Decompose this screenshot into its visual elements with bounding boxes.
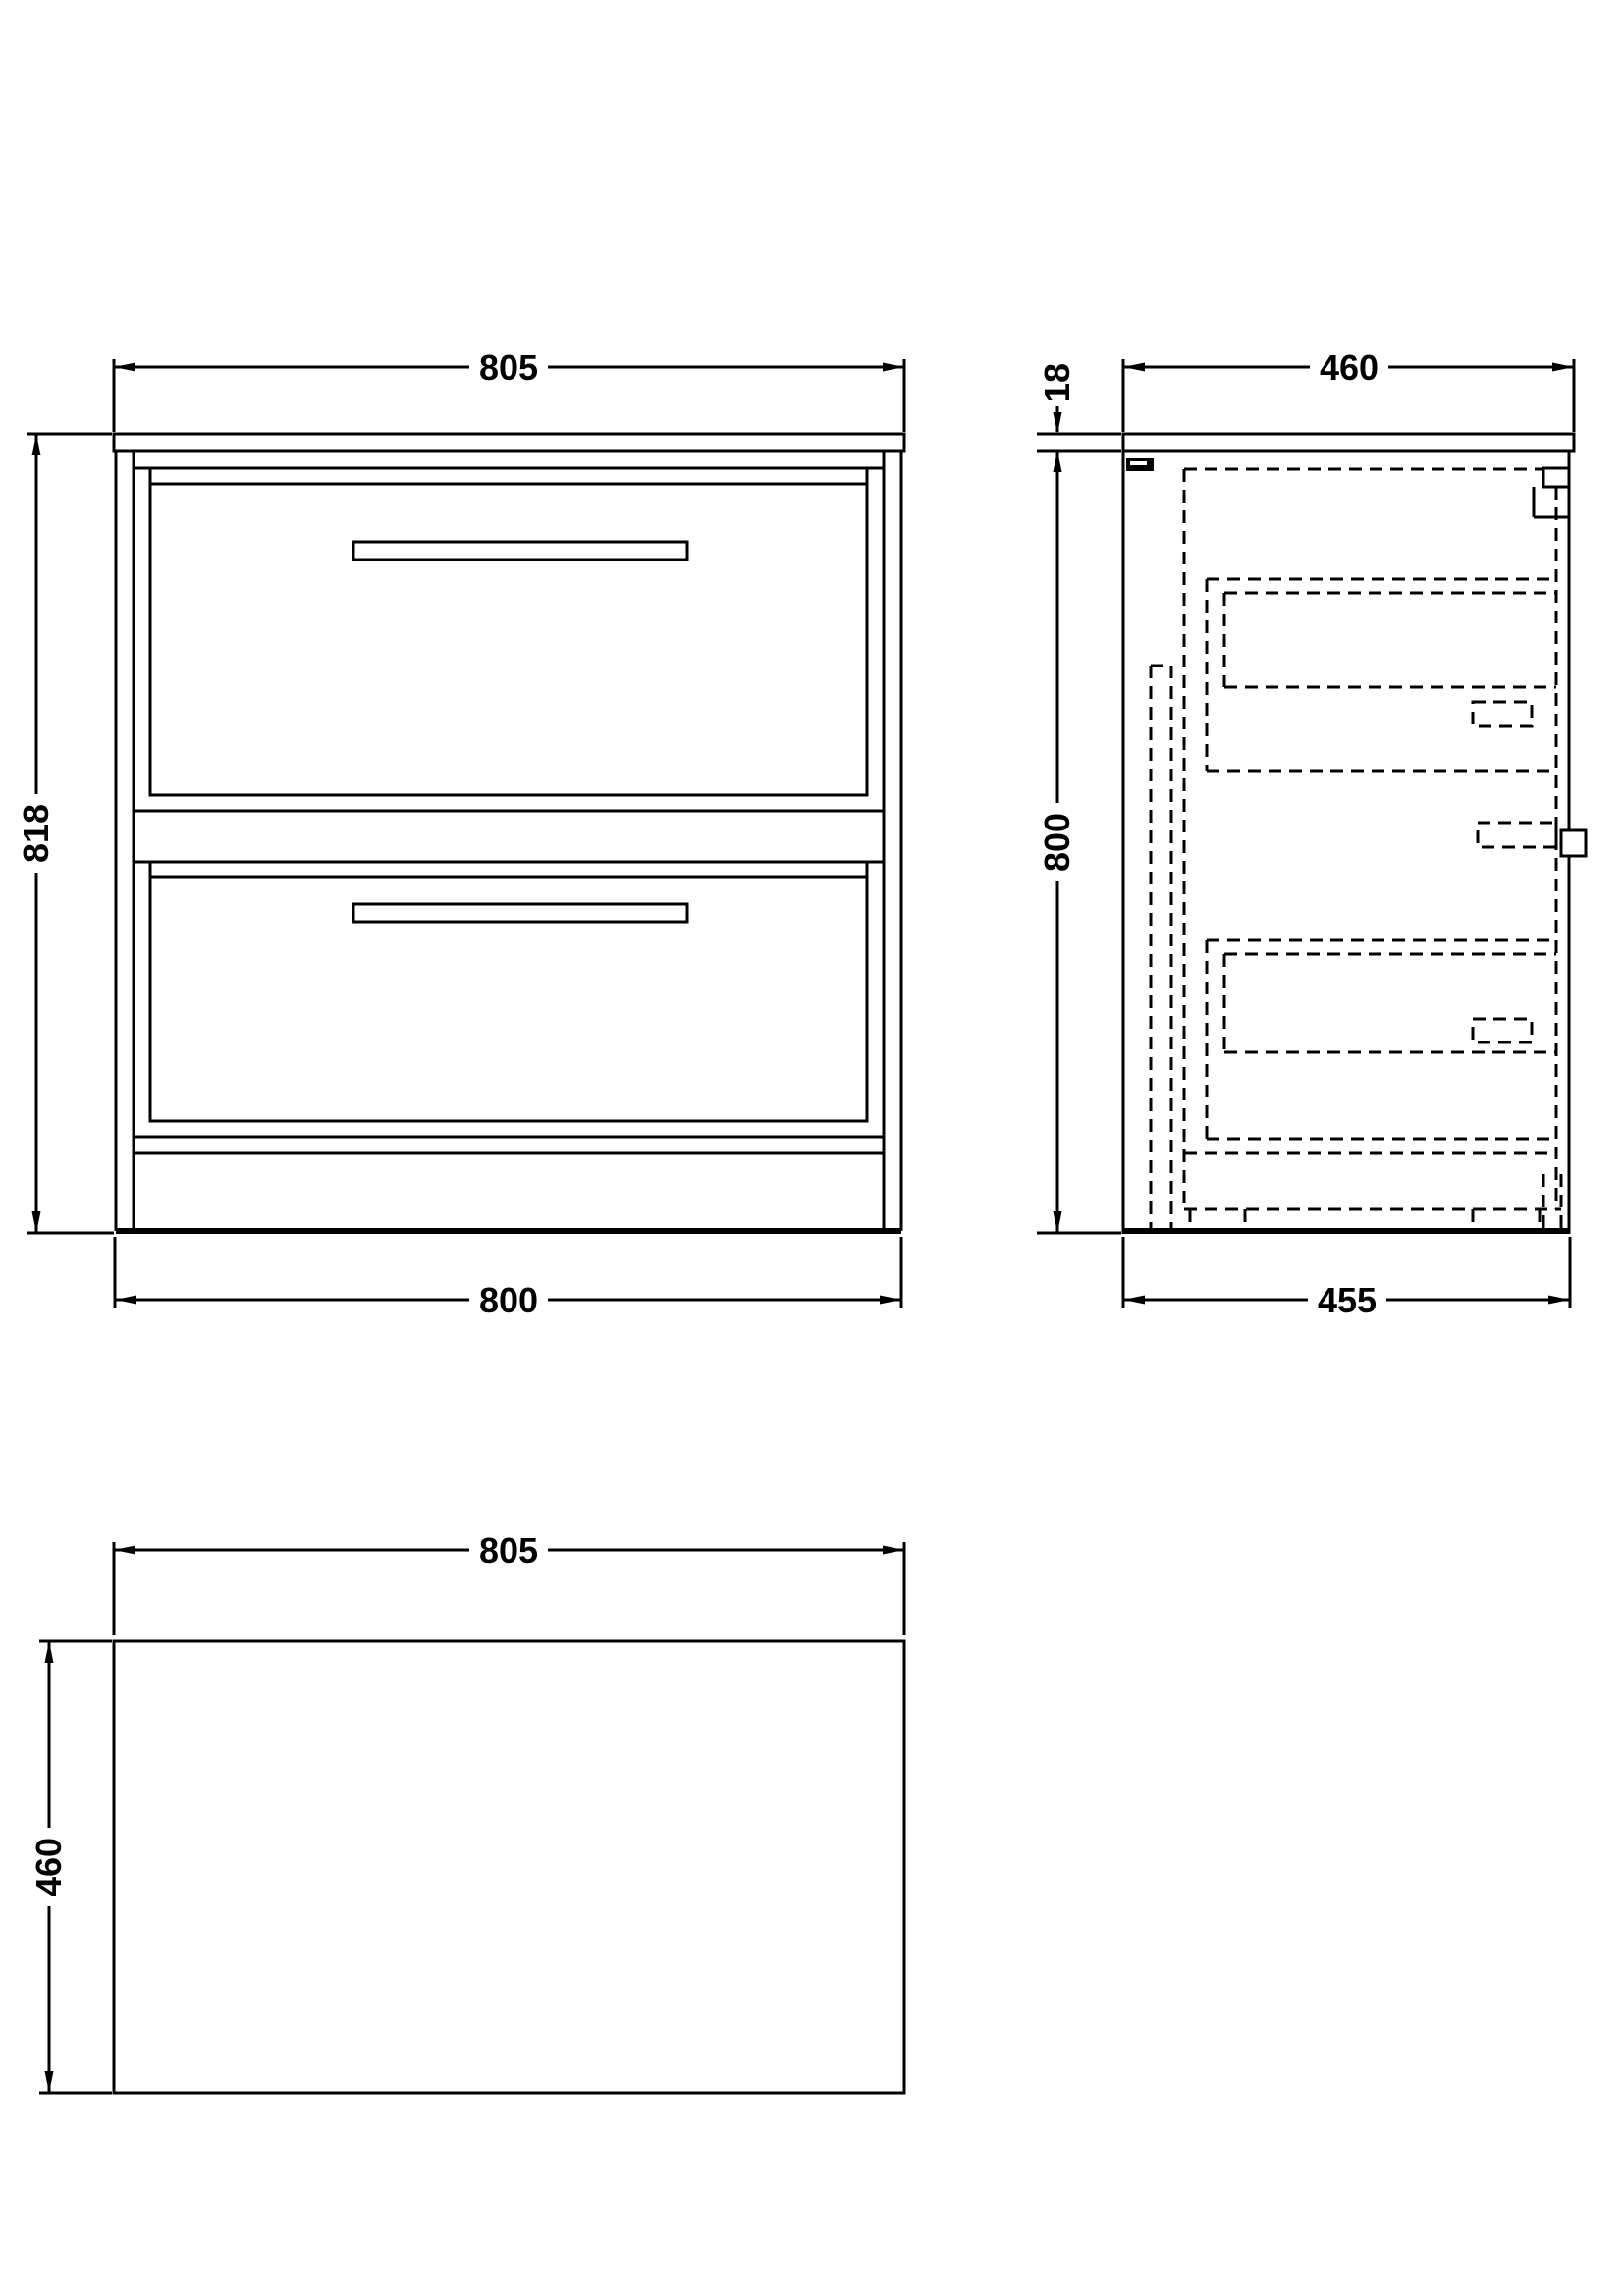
front-width-bottom-label: 800 — [479, 1280, 538, 1320]
front-view — [27, 359, 904, 1308]
arrowhead-left — [114, 1546, 135, 1555]
plan-width-top-label: 805 — [479, 1530, 538, 1571]
side-front-bracket-slot — [1130, 461, 1147, 465]
arrowhead-left — [1123, 363, 1145, 372]
side-bottom-edge — [1123, 1228, 1569, 1234]
drawer-1-slide-block — [1473, 702, 1532, 726]
arrowhead-down — [1054, 412, 1062, 434]
plan-countertop-outline — [114, 1641, 904, 2093]
side-countertop — [1123, 434, 1574, 451]
arrowhead-left — [1123, 1296, 1145, 1305]
front-drawer-2-front — [150, 862, 867, 1121]
front-width-top-label: 805 — [479, 347, 538, 388]
arrowhead-right — [880, 1296, 901, 1305]
side-back-rail — [1543, 468, 1569, 487]
arrowhead-right — [883, 363, 904, 372]
arrowhead-left — [115, 1296, 136, 1305]
technical-drawing: 805 818 800 460 18 800 455 805 460 — [0, 0, 1623, 2296]
front-countertop — [114, 434, 904, 451]
side-drawer-2 — [1207, 940, 1556, 1139]
side-mid-bracket-tab — [1561, 830, 1586, 856]
side-hidden-lines — [1151, 469, 1561, 1228]
front-drawer-1-handle — [353, 542, 687, 560]
arrowhead-right — [1548, 1296, 1570, 1305]
arrowhead-down — [1054, 1211, 1062, 1233]
side-depth-bottom-label: 455 — [1318, 1280, 1377, 1320]
front-drawer-2-handle — [353, 904, 687, 922]
arrowhead-down — [45, 2071, 54, 2093]
front-drawer-1 — [150, 468, 867, 795]
arrowhead-right — [1552, 363, 1574, 372]
arrowhead-left — [114, 363, 135, 372]
front-drawer-1-front — [150, 468, 867, 795]
arrowhead-down — [32, 1211, 41, 1233]
plan-view — [39, 1542, 904, 2093]
arrowhead-right — [883, 1546, 904, 1555]
side-mid-bracket — [1478, 823, 1556, 847]
side-depth-top-label: 460 — [1320, 347, 1379, 388]
front-drawer-2 — [150, 862, 867, 1121]
drawing-sheet: 805 818 800 460 18 800 455 805 460 — [0, 0, 1623, 2296]
front-bottom-edge — [116, 1228, 901, 1234]
side-dim-top-thickness — [1037, 406, 1121, 472]
arrowhead-up — [32, 434, 41, 455]
side-view — [1037, 359, 1586, 1308]
plan-depth-left-label: 460 — [28, 1838, 69, 1896]
drawer-2-slide-block — [1473, 1019, 1532, 1042]
arrowhead-up — [45, 1641, 54, 1663]
side-drawer-1 — [1207, 579, 1556, 771]
side-height-left-label: 800 — [1037, 813, 1077, 872]
side-top-thickness-label: 18 — [1037, 363, 1077, 402]
front-height-left-label: 818 — [16, 804, 56, 863]
